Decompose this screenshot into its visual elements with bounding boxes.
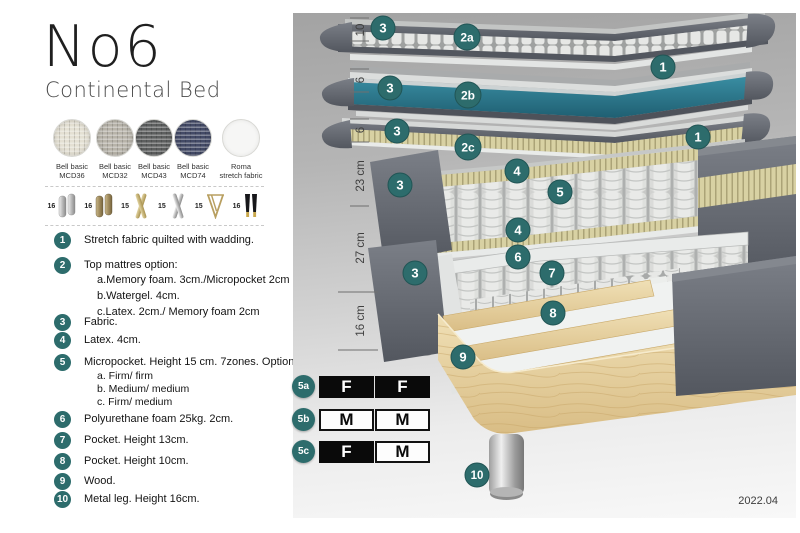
legend-subtext: a. Firm/ firm — [84, 369, 297, 382]
legend-number-badge: 3 — [54, 314, 71, 331]
product-title: No6 — [43, 14, 163, 80]
fabric-swatch-circle — [222, 119, 260, 157]
tapered-black-leg-icon — [242, 193, 260, 219]
legend-subtext: a.Memory foam. 3cm./Micropocket 2cm — [84, 272, 290, 288]
leg-height: 15 — [195, 203, 203, 210]
badge-label: 10 — [471, 470, 484, 482]
firmness-cell: M — [319, 409, 374, 431]
leg-height: 16 — [84, 203, 92, 210]
firmness-cell: M — [375, 409, 430, 431]
leg-option: 16 — [45, 186, 80, 226]
box-right-cover — [672, 256, 796, 396]
firmness-badge: 5c — [292, 440, 315, 463]
legend-text: Fabric. — [84, 314, 118, 331]
firmness-cell: F — [319, 376, 374, 398]
dimension-label: 16 cm — [355, 305, 367, 336]
badge-label: 9 — [459, 350, 466, 365]
legend-number-badge: 1 — [54, 232, 71, 249]
badge-label: 6 — [514, 250, 521, 265]
leg-option: 15 — [119, 186, 154, 226]
badge-label: 4 — [513, 164, 521, 179]
legend-text: Top mattres option: — [84, 259, 290, 272]
fabric-code: MCD32 — [102, 171, 127, 180]
badge-label: 1 — [659, 60, 666, 75]
product-sheet: { "title": "No6", "subtitle": "Continent… — [0, 0, 800, 533]
legend-text: Metal leg. Height 16cm. — [84, 491, 200, 508]
badge-label: 3 — [386, 81, 393, 96]
legend-item: 7 Pocket. Height 13cm. — [54, 432, 189, 449]
legend-number-badge: 4 — [54, 332, 71, 349]
cross-gold-leg-icon — [131, 193, 151, 219]
legend-item: 4 Latex. 4cm. — [54, 332, 141, 349]
badge-label: 4 — [514, 223, 522, 238]
legend-text: Micropocket. Height 15 cm. 7zones. Optio… — [84, 356, 297, 369]
legend-item: 6 Polyurethane foam 25kg. 2cm. — [54, 411, 233, 428]
fabric-swatch-circle — [174, 119, 212, 157]
product-subtitle: Continental Bed — [45, 78, 221, 102]
leg-option: 15 — [155, 186, 190, 226]
dimension-label: 10 — [355, 24, 367, 37]
legend-text: Polyurethane foam 25kg. 2cm. — [84, 411, 233, 428]
legend-item: 1 Stretch fabric quilted with wadding. — [54, 232, 254, 249]
legend-number-badge: 9 — [54, 473, 71, 490]
legend-number-badge: 8 — [54, 453, 71, 470]
legend-text: Pocket. Height 10cm. — [84, 453, 189, 470]
leg-option: 15 — [192, 186, 227, 226]
legend-number-badge: 6 — [54, 411, 71, 428]
legend-subtext: c. Firm/ medium — [84, 395, 297, 408]
firmness-row-5b: 5b M M — [292, 408, 430, 431]
firmness-cell: F — [319, 441, 374, 463]
legend-subtext: b. Medium/ medium — [84, 382, 297, 395]
cross-silver-leg-icon — [168, 193, 188, 219]
legend-text: Pocket. Height 13cm. — [84, 432, 189, 449]
firmness-row-5a: 5a F F — [292, 375, 430, 398]
legend-text: Stretch fabric quilted with wadding. — [84, 232, 254, 249]
firmness-badge: 5a — [292, 375, 315, 398]
leg-options: 16 16 15 15 — [45, 186, 264, 226]
badge-label: 8 — [549, 306, 556, 321]
badge-label: 3 — [411, 266, 418, 281]
legend-item: 2 Top mattres option: a.Memory foam. 3cm… — [54, 257, 290, 320]
legend-number-badge: 5 — [54, 354, 71, 371]
leg-height: 15 — [158, 203, 166, 210]
firmness-badge: 5b — [292, 408, 315, 431]
cylinder-silver-leg-icon — [57, 193, 77, 219]
fabric-name: Roma — [231, 162, 251, 171]
legend-number-badge: 7 — [54, 432, 71, 449]
dimension-label: 6 — [355, 77, 367, 83]
badge-label: 3 — [379, 21, 386, 36]
badge-label: 3 — [396, 178, 403, 193]
firmness-cell: F — [375, 376, 430, 398]
leg-option: 16 — [82, 186, 117, 226]
dimension-label: 27 cm — [355, 232, 367, 263]
firmness-cell: M — [375, 441, 430, 463]
version-label: 2022.04 — [698, 495, 778, 507]
fabric-swatch-circle — [53, 119, 91, 157]
badge-label: 1 — [694, 130, 701, 145]
leg-height: 16 — [233, 203, 241, 210]
badge-label: 2a — [460, 31, 474, 45]
dimension-label: 6 — [355, 127, 367, 133]
legend-number-badge: 10 — [54, 491, 71, 508]
firmness-row-5c: 5c F M — [292, 440, 430, 463]
fabric-swatch: Romastretch fabric — [213, 119, 269, 180]
fabric-code: MCD36 — [59, 171, 84, 180]
fabric-name: Bell basic — [177, 162, 209, 171]
legend-subtext: b.Watergel. 4cm. — [84, 288, 290, 304]
legend-item: 10 Metal leg. Height 16cm. — [54, 491, 200, 508]
badge-label: 7 — [548, 266, 555, 281]
fabric-code: MCD74 — [180, 171, 205, 180]
badge-label: 5 — [556, 185, 563, 200]
legend-text: Latex. 4cm. — [84, 332, 141, 349]
badge-label: 2b — [461, 89, 475, 103]
legend-item: 3 Fabric. — [54, 314, 118, 331]
legend-item: 8 Pocket. Height 10cm. — [54, 453, 189, 470]
front-metal-leg — [489, 434, 524, 500]
badge-label: 3 — [393, 124, 400, 139]
cylinder-brass-leg-icon — [94, 193, 114, 219]
leg-height: 15 — [121, 203, 129, 210]
fabric-code: stretch fabric — [220, 171, 263, 180]
badge-label: 2c — [461, 141, 475, 155]
legend-item: 9 Wood. — [54, 473, 116, 490]
legend-text: Wood. — [84, 473, 116, 490]
fabric-code: MCD43 — [141, 171, 166, 180]
info-panel: No6 Continental Bed Bell basicMCD36 Bell… — [0, 0, 293, 533]
dimension-label: 23 cm — [355, 160, 367, 191]
leg-option: 16 — [229, 186, 264, 226]
legend-number-badge: 2 — [54, 257, 71, 274]
leg-height: 16 — [48, 203, 56, 210]
legend-item: 5 Micropocket. Height 15 cm. 7zones. Opt… — [54, 354, 297, 407]
hairpin-gold-leg-icon — [205, 193, 225, 219]
fabric-name: Bell basic — [56, 162, 88, 171]
